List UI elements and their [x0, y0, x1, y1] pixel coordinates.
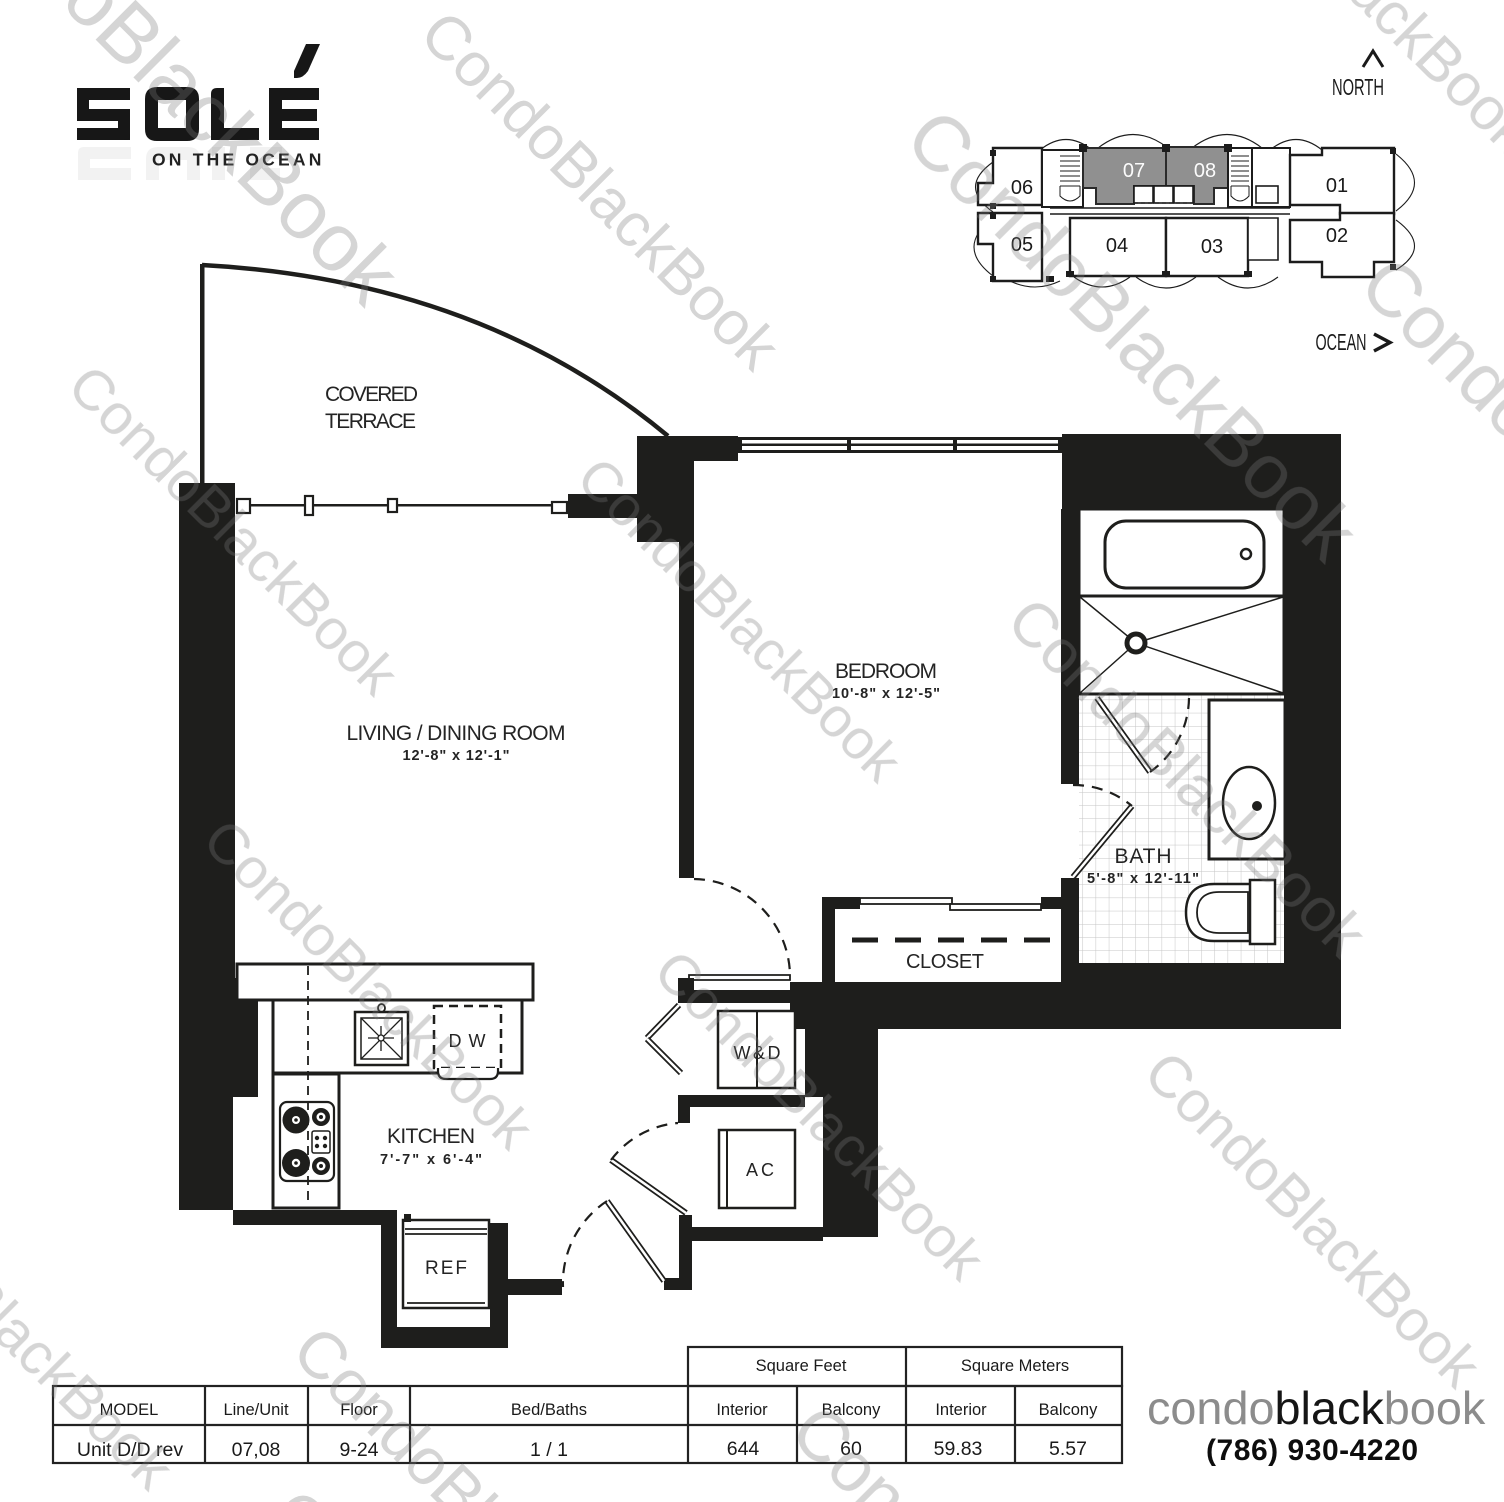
- svg-text:07,08: 07,08: [232, 1439, 281, 1461]
- svg-text:644: 644: [727, 1438, 760, 1460]
- svg-text:Interior: Interior: [935, 1401, 987, 1419]
- svg-text:OCEAN: OCEAN: [1316, 329, 1367, 355]
- svg-text:01: 01: [1326, 175, 1348, 197]
- svg-text:Square Meters: Square Meters: [961, 1357, 1069, 1375]
- svg-text:TERRACE: TERRACE: [325, 410, 416, 433]
- svg-text:Line/Unit: Line/Unit: [223, 1401, 289, 1419]
- svg-text:Interior: Interior: [716, 1401, 768, 1419]
- svg-text:BATH: BATH: [1115, 845, 1172, 868]
- svg-text:LIVING / DINING ROOM: LIVING / DINING ROOM: [347, 722, 566, 745]
- svg-text:condoblackbook: condoblackbook: [1147, 1382, 1486, 1434]
- svg-text:5'-8" x 12'-11": 5'-8" x 12'-11": [1087, 871, 1199, 887]
- svg-text:Balcony: Balcony: [1039, 1401, 1098, 1419]
- svg-text:03: 03: [1201, 236, 1223, 258]
- svg-text:BEDROOM: BEDROOM: [835, 660, 937, 683]
- svg-text:REF: REF: [425, 1258, 467, 1279]
- svg-text:Bed/Baths: Bed/Baths: [511, 1401, 587, 1419]
- svg-text:KITCHEN: KITCHEN: [387, 1125, 475, 1148]
- svg-text:59.83: 59.83: [934, 1438, 983, 1460]
- svg-text:CLOSET: CLOSET: [906, 951, 984, 973]
- svg-text:5.57: 5.57: [1049, 1438, 1087, 1460]
- svg-text:07: 07: [1123, 160, 1145, 182]
- svg-text:1 / 1: 1 / 1: [530, 1439, 568, 1461]
- svg-text:COVERED: COVERED: [325, 383, 418, 406]
- svg-text:NORTH: NORTH: [1332, 74, 1384, 100]
- svg-text:12'-8" x 12'-1": 12'-8" x 12'-1": [403, 748, 510, 764]
- svg-text:(786) 930-4220: (786) 930-4220: [1206, 1434, 1418, 1467]
- svg-text:Square Feet: Square Feet: [756, 1357, 847, 1375]
- svg-text:08: 08: [1194, 160, 1216, 182]
- svg-text:02: 02: [1326, 225, 1348, 247]
- svg-text:7'-7" x 6'-4": 7'-7" x 6'-4": [380, 1152, 482, 1168]
